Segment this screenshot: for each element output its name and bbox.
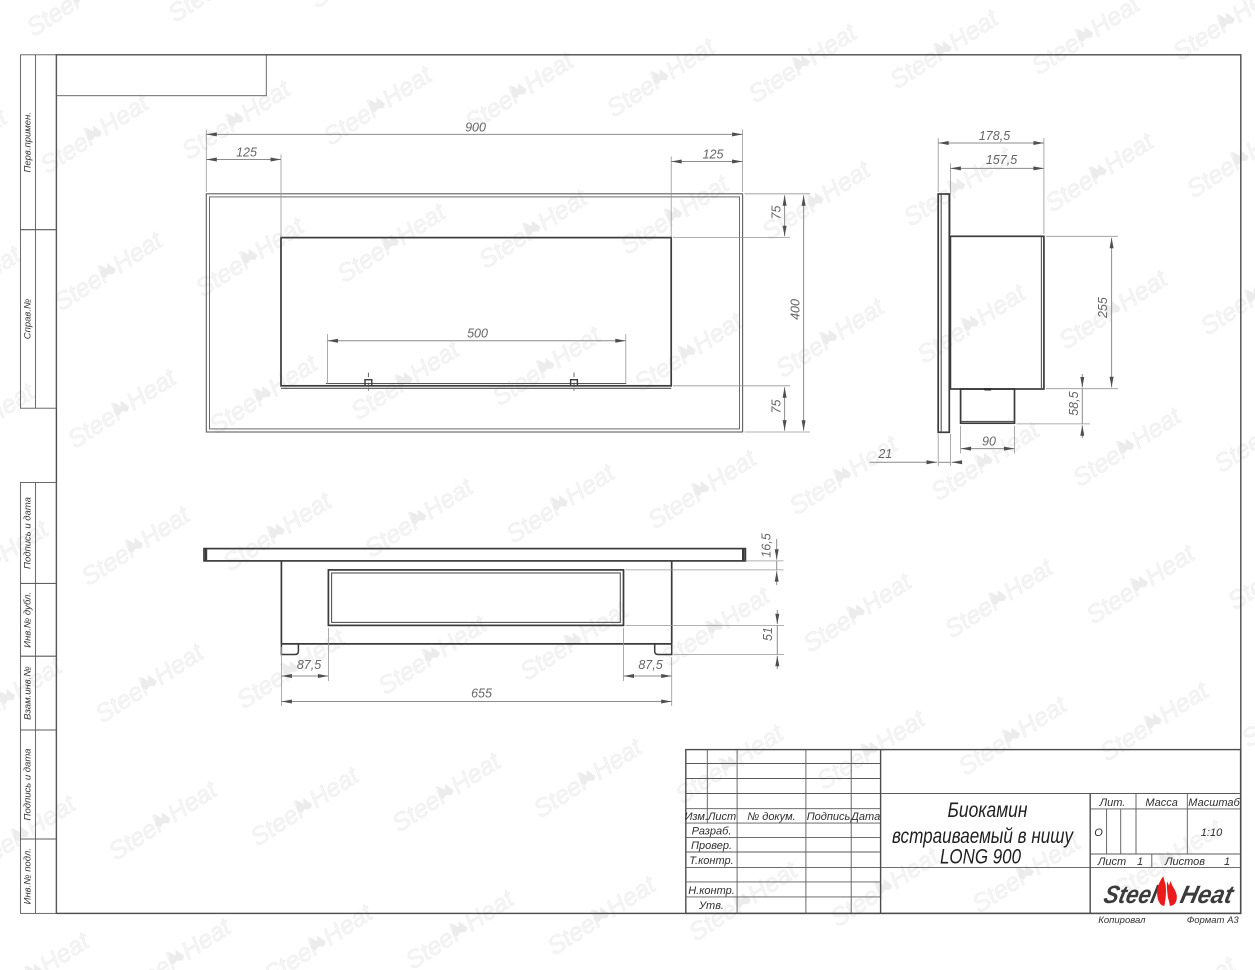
- svg-text:1: 1: [1137, 856, 1143, 868]
- svg-text:900: 900: [465, 120, 486, 134]
- svg-text:1: 1: [1224, 856, 1230, 868]
- svg-text:51: 51: [761, 627, 775, 641]
- svg-text:Разраб.: Разраб.: [692, 826, 732, 838]
- svg-text:Подпись и дата: Подпись и дата: [23, 749, 34, 821]
- svg-text:Утв.: Утв.: [698, 900, 724, 912]
- svg-text:178,5: 178,5: [979, 129, 1010, 143]
- svg-text:Масштаб: Масштаб: [1188, 797, 1240, 809]
- svg-text:75: 75: [770, 400, 784, 414]
- svg-text:157,5: 157,5: [986, 153, 1017, 167]
- svg-text:О: О: [1094, 827, 1103, 839]
- svg-text:75: 75: [770, 206, 784, 220]
- svg-text:Подпись: Подпись: [807, 811, 851, 823]
- svg-text:125: 125: [236, 145, 257, 159]
- svg-text:Провер.: Провер.: [691, 840, 732, 852]
- svg-text:Heat: Heat: [1178, 881, 1238, 909]
- svg-text:Steel: Steel: [1101, 881, 1161, 909]
- svg-text:Инв.№ подл.: Инв.№ подл.: [23, 848, 34, 904]
- svg-text:Взам.инв.№: Взам.инв.№: [23, 666, 34, 719]
- svg-text:Справ.№: Справ.№: [23, 299, 34, 340]
- svg-text:Лит.: Лит.: [1099, 797, 1126, 809]
- svg-text:1:10: 1:10: [1201, 827, 1223, 839]
- svg-text:Изм.: Изм.: [685, 811, 708, 823]
- svg-text:Подпись и дата: Подпись и дата: [23, 497, 34, 569]
- svg-text:90: 90: [982, 434, 996, 448]
- svg-text:№ докум.: № докум.: [747, 811, 795, 823]
- svg-text:Перв.примен.: Перв.примен.: [23, 112, 34, 173]
- svg-text:400: 400: [789, 299, 803, 320]
- svg-text:21: 21: [877, 447, 892, 461]
- svg-text:Лист: Лист: [1097, 856, 1126, 868]
- svg-text:Дата: Дата: [849, 811, 880, 823]
- svg-text:Т.контр.: Т.контр.: [689, 855, 733, 867]
- svg-text:255: 255: [1096, 297, 1110, 319]
- svg-text:Лист: Лист: [707, 811, 736, 823]
- svg-text:125: 125: [703, 147, 724, 161]
- svg-text:655: 655: [471, 686, 492, 700]
- svg-text:Н.контр.: Н.контр.: [688, 885, 735, 897]
- svg-text:Листов: Листов: [1164, 856, 1205, 868]
- svg-text:87,5: 87,5: [638, 658, 662, 672]
- svg-text:Копировал: Копировал: [1098, 915, 1146, 926]
- svg-text:500: 500: [467, 327, 488, 341]
- svg-text:LONG 900: LONG 900: [940, 846, 1021, 869]
- svg-text:58,5: 58,5: [1067, 391, 1081, 415]
- svg-text:Биокамин: Биокамин: [948, 799, 1028, 822]
- svg-text:Инв.№ дубл.: Инв.№ дубл.: [23, 592, 34, 648]
- svg-text:Формат А3: Формат А3: [1187, 915, 1240, 926]
- svg-text:87,5: 87,5: [297, 658, 321, 672]
- svg-text:Масса: Масса: [1145, 797, 1178, 809]
- svg-text:16,5: 16,5: [760, 533, 774, 557]
